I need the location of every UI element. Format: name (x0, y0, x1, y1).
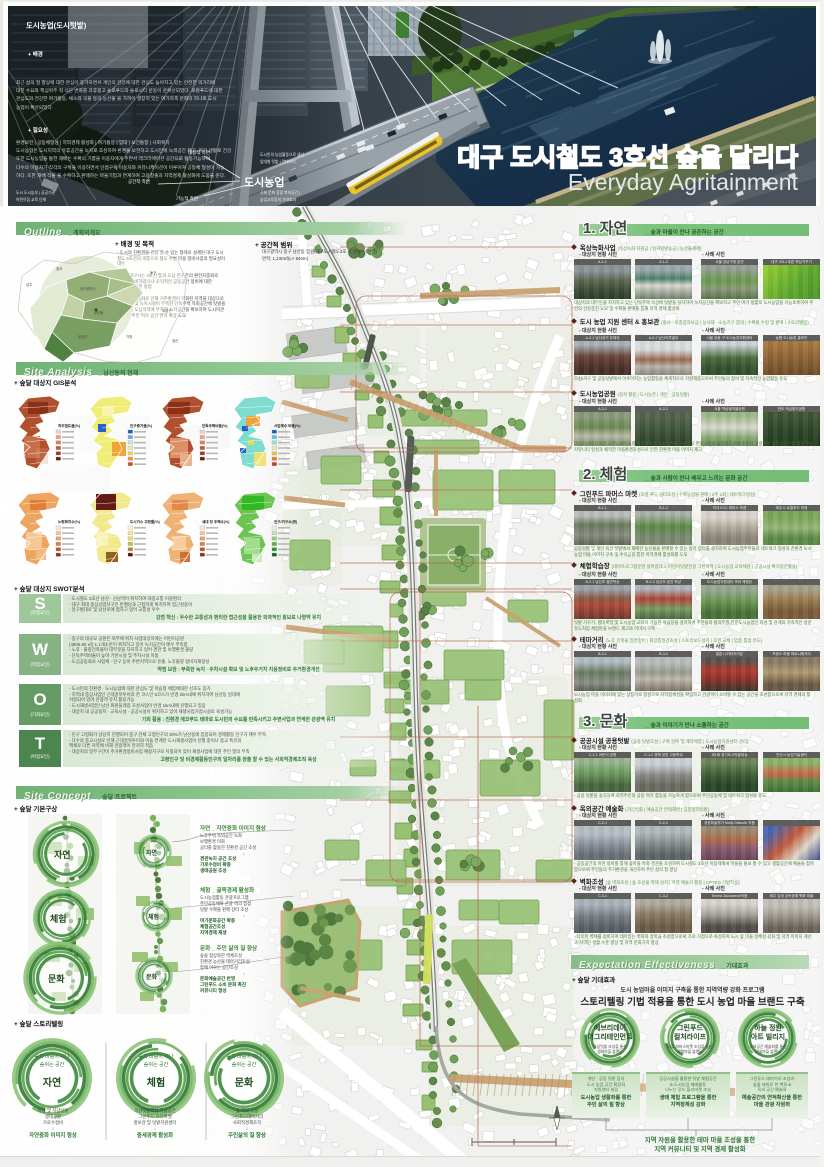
svg-text:자연: 자연 (54, 849, 71, 860)
svg-text:체험: 체험 (148, 913, 159, 921)
svg-text:사회 문화 융합 복지공간 |: 사회 문화 융합 복지공간 | (260, 190, 300, 195)
svg-text:예술마을 블랜딩: 예술마을 블랜딩 (755, 1049, 781, 1054)
svg-text:어린이집 교육 단체: 어린이집 교육 단체 (16, 197, 47, 202)
svg-text:자연: 자연 (146, 849, 158, 857)
svg-text:+ 필요성: + 필요성 (28, 126, 48, 134)
svg-text:마을 파머스마켓 조성을 통한: 마을 파머스마켓 조성을 통한 (667, 1044, 713, 1049)
svg-text:경산: 경산 (172, 338, 178, 343)
svg-text:동구: 동구 (150, 271, 156, 275)
svg-text:농업교육장의 기대효과: 농업교육장의 기대효과 (260, 197, 296, 202)
svg-text:인구증가율(%): 인구증가율(%) (130, 423, 153, 428)
svg-text:숨쉬는 공간: 숨쉬는 공간 (40, 1061, 65, 1068)
svg-text:세대 당 주택수(%): 세대 당 주택수(%) (202, 519, 230, 524)
svg-text:대상적 측면: 대상적 측면 (188, 149, 210, 156)
svg-text:하늘 정원: 하늘 정원 (754, 1023, 782, 1032)
svg-text:사업체수 비율(%): 사업체수 비율(%) (274, 423, 301, 428)
svg-text:숨쉬는 공간: 숨쉬는 공간 (144, 1061, 169, 1068)
svg-text:단독주택비율(%): 단독주택비율(%) (202, 423, 228, 428)
svg-text:수성구: 수성구 (162, 308, 171, 313)
svg-text:하다. 또한 재배 작물 을 수확하고 판매하는 마을기업과: 하다. 또한 재배 작물 을 수확하고 판매하는 마을기업과 연계하여 고용창출… (16, 172, 225, 179)
svg-text:도시민의 농업활동으로 생산: 도시민의 농업활동으로 생산 (260, 152, 305, 157)
svg-text:어그리테인먼트: 어그리테인먼트 (587, 1032, 633, 1041)
svg-text:+ 배경: + 배경 (28, 50, 43, 58)
svg-text:저주철도율(%): 저주철도율(%) (58, 423, 81, 428)
svg-text:도시 도시농부 | 공공기관: 도시 도시농부 | 공공기관 (16, 190, 56, 195)
svg-text:인구/가구수(명): 인구/가구수(명) (274, 519, 298, 524)
svg-text:도시농업: 도시농업 (244, 176, 284, 189)
svg-text:옥외공간 예술화를 통한: 옥외공간 예술화를 통한 (749, 1044, 787, 1049)
svg-text:농업이 확산되었다.: 농업이 확산되었다. (16, 104, 53, 111)
svg-text:Everyday Agritainment: Everyday Agritainment (568, 169, 799, 195)
svg-text:자연: 자연 (43, 1076, 61, 1089)
svg-text:기능적 측면: 기능적 측면 (176, 195, 198, 202)
svg-text:숲의 바람이 지나: 숲의 바람이 지나 (35, 1053, 70, 1060)
svg-text:체험: 체험 (50, 913, 67, 924)
svg-text:달성군: 달성군 (78, 334, 87, 339)
svg-text:노령화지수(%): 노령화지수(%) (58, 519, 81, 524)
svg-text:생태마을 블랜딩: 생태마을 블랜딩 (597, 1049, 623, 1054)
svg-text:도시가스 고령률(%): 도시가스 고령률(%) (130, 519, 161, 524)
svg-text:숨쉬는 공간: 숨쉬는 공간 (232, 1061, 257, 1068)
svg-text:컬처라이프: 컬처라이프 (674, 1032, 707, 1041)
svg-text:옥상텃밭 조성을 통한: 옥상텃밭 조성을 통한 (593, 1044, 627, 1049)
svg-text:숲의 바람이 지나: 숲의 바람이 지나 (227, 1053, 262, 1060)
svg-text:또한 도시농업을 통한 재배는 수확의 기쁨을 이용자에게: 또한 도시농업을 통한 재배는 수확의 기쁨을 이용자에게 주면서 레크리에이션… (16, 155, 210, 162)
svg-text:가창: 가창 (126, 334, 132, 339)
svg-text:아트 빌리지: 아트 빌리지 (751, 1032, 785, 1041)
svg-text:관심도와 건강한 여가활동, 채소와 곡물 등의 농산물 을: 관심도와 건강한 여가활동, 채소와 곡물 등의 농산물 을 가까이 생장히 있… (16, 95, 217, 102)
svg-text:환경보전 | 공동체형성 | 지역경제 활성: 환경보전 | 공동체형성 | 지역경제 활성화 | 여가활동 | 임대 | 보건… (16, 139, 170, 146)
svg-text:그린푸드: 그린푸드 (677, 1023, 703, 1032)
svg-text:문화: 문화 (146, 973, 158, 981)
svg-text:체험: 체험 (147, 1076, 165, 1089)
svg-text:문화: 문화 (235, 1077, 254, 1089)
svg-text:대구 도시철도 3호선 숲을 달리다: 대구 도시철도 3호선 숲을 달리다 (457, 144, 798, 172)
svg-text:에브리데이: 에브리데이 (594, 1023, 626, 1032)
svg-text:문화: 문화 (48, 973, 65, 984)
svg-text:숲의 바람이 지나: 숲의 바람이 지나 (139, 1053, 174, 1060)
svg-text:대구광역시: 대구광역시 (80, 286, 96, 291)
svg-text:대한 수요와 핵심위주 적 식단 변화를 과휴핑고 슬로푸드: 대한 수요와 핵심위주 적 식단 변화를 과휴핑고 슬로푸드와 슬로시티 운동이… (16, 87, 223, 94)
svg-text:다수의 이용자가 각각의 구획을 이용하면서 인접구획 이용: 다수의 이용자가 각각의 구획을 이용하면서 인접구획 이용자와 커뮤니케이션이… (16, 164, 225, 171)
svg-text:칠곡: 칠곡 (56, 266, 62, 271)
svg-text:최근 삶의 질 향상에 대한 관심이 증가하면서 개인의 건: 최근 삶의 질 향상에 대한 관심이 증가하면서 개인의 건강에 대한 관심도 … (16, 79, 215, 86)
svg-text:도시농업(도시텃밭): 도시농업(도시텃밭) (26, 20, 87, 30)
svg-text:공간적 측면: 공간적 측면 (128, 178, 150, 185)
svg-text:성주: 성주 (26, 282, 32, 287)
svg-text:체험마을 블랜딩: 체험마을 블랜딩 (677, 1049, 703, 1054)
svg-text:임대형 텃밭 | 컨테이너: 임대형 텃밭 | 컨테이너 (260, 159, 296, 164)
